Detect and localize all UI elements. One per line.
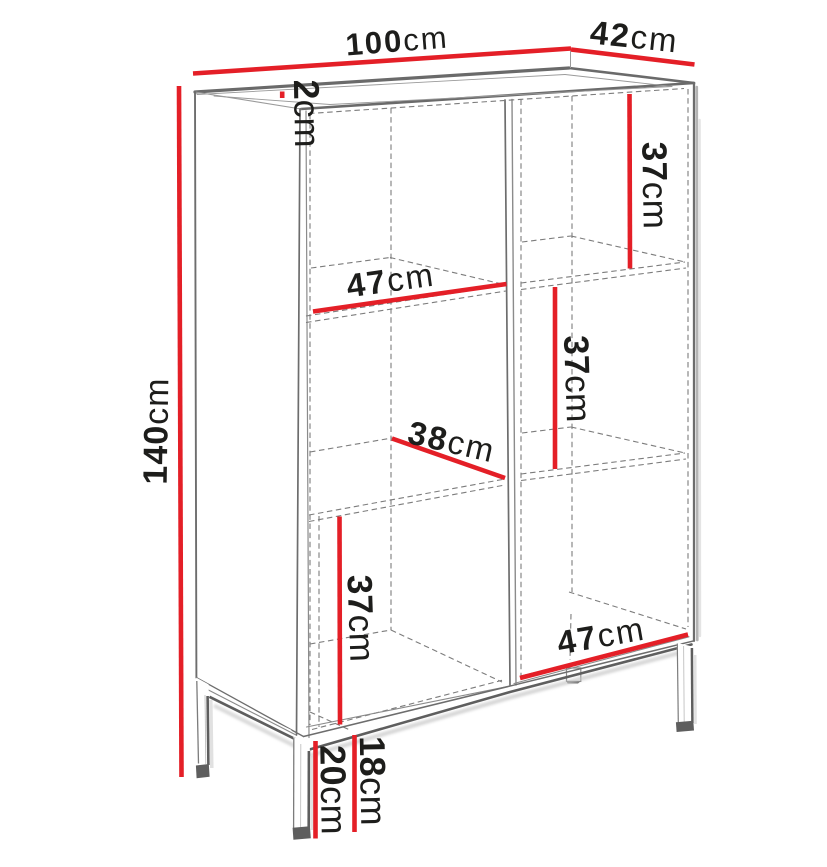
svg-text:37cm: 37cm xyxy=(340,574,382,663)
svg-text:140cm: 140cm xyxy=(137,377,177,485)
svg-text:18cm: 18cm xyxy=(352,736,395,827)
svg-text:2cm: 2cm xyxy=(286,79,328,148)
svg-text:37cm: 37cm xyxy=(635,141,676,229)
svg-text:37cm: 37cm xyxy=(556,335,598,424)
svg-text:20cm: 20cm xyxy=(313,745,356,836)
